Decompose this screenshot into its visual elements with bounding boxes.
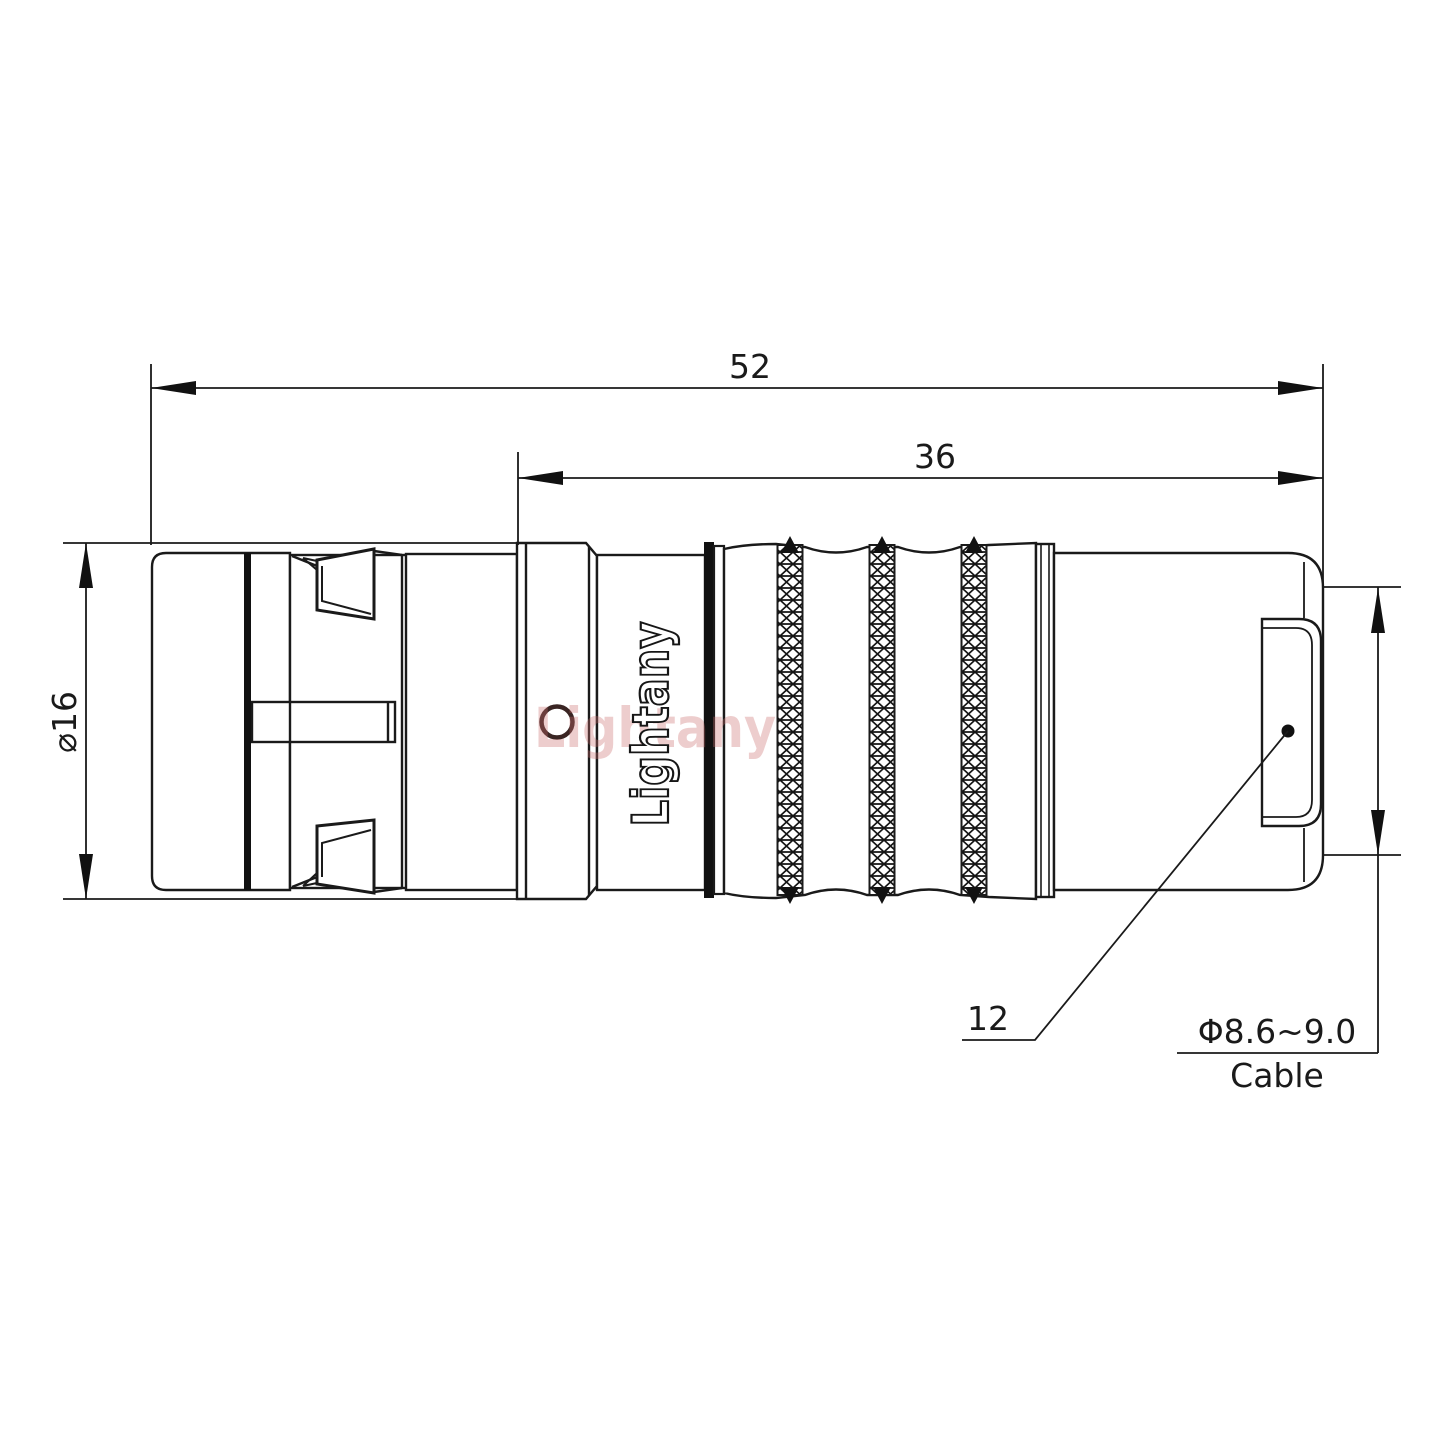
latch-window — [252, 702, 395, 742]
dim-overall-length: 52 — [729, 347, 771, 386]
dim-cable-diameter: Φ8.6~9.0 — [1198, 1012, 1357, 1051]
dim-rear-length: 36 — [914, 437, 956, 476]
dim-body-diameter: ⌀16 — [45, 691, 84, 753]
drawing-canvas: Lightany Lightany 52 36 ⌀16 12 Φ8.6~9.0 … — [0, 0, 1440, 1440]
coupling-stripe-front — [244, 553, 251, 890]
engraving-text: Lightany — [622, 622, 680, 827]
collar-end-ring — [1036, 544, 1054, 897]
cable-label: Cable — [1230, 1056, 1324, 1095]
dim-boot-ref: 12 — [967, 999, 1009, 1038]
mid-section — [406, 554, 517, 890]
connector-drawing: Lightany Lightany 52 36 ⌀16 12 Φ8.6~9.0 … — [0, 0, 1440, 1440]
